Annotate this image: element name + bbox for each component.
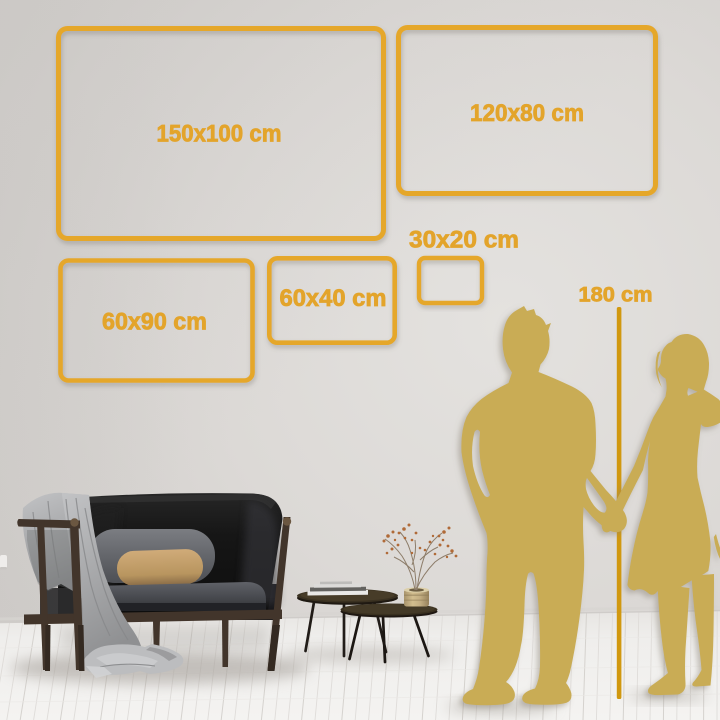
svg-text:150x100 cm: 150x100 cm bbox=[157, 121, 282, 148]
svg-text:30x20 cm: 30x20 cm bbox=[409, 227, 519, 254]
svg-text:180 cm: 180 cm bbox=[579, 284, 653, 307]
svg-text:60x40 cm: 60x40 cm bbox=[280, 285, 387, 312]
svg-text:120x80 cm: 120x80 cm bbox=[470, 100, 584, 127]
svg-text:60x90 cm: 60x90 cm bbox=[102, 309, 207, 336]
